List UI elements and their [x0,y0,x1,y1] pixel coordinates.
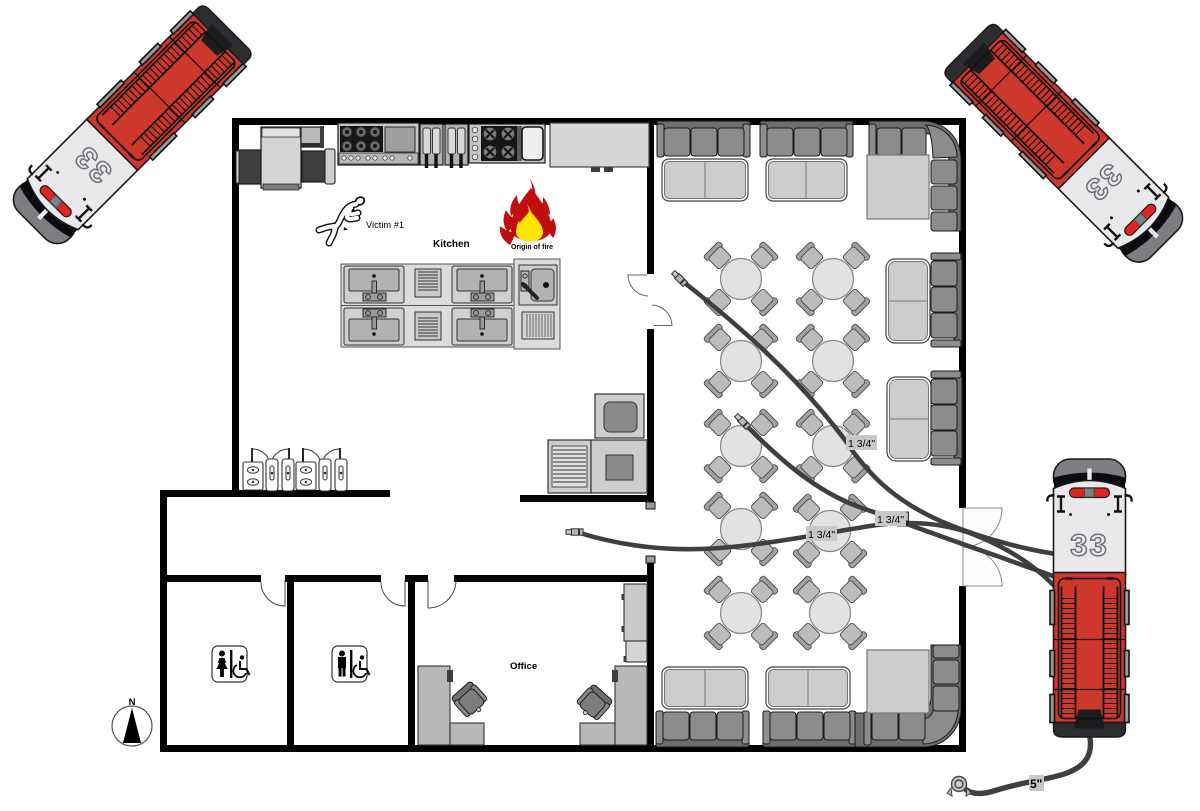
svg-text:5": 5" [1030,777,1042,791]
svg-text:Victim #1: Victim #1 [366,220,404,230]
svg-text:Office: Office [510,661,537,672]
svg-text:N: N [129,697,136,708]
svg-text:1 3/4": 1 3/4" [848,438,875,450]
svg-text:Origin of fire: Origin of fire [511,244,553,251]
svg-text:1 3/4": 1 3/4" [808,529,835,541]
svg-text:1 3/4": 1 3/4" [877,514,904,526]
svg-text:Kitchen: Kitchen [433,239,470,250]
